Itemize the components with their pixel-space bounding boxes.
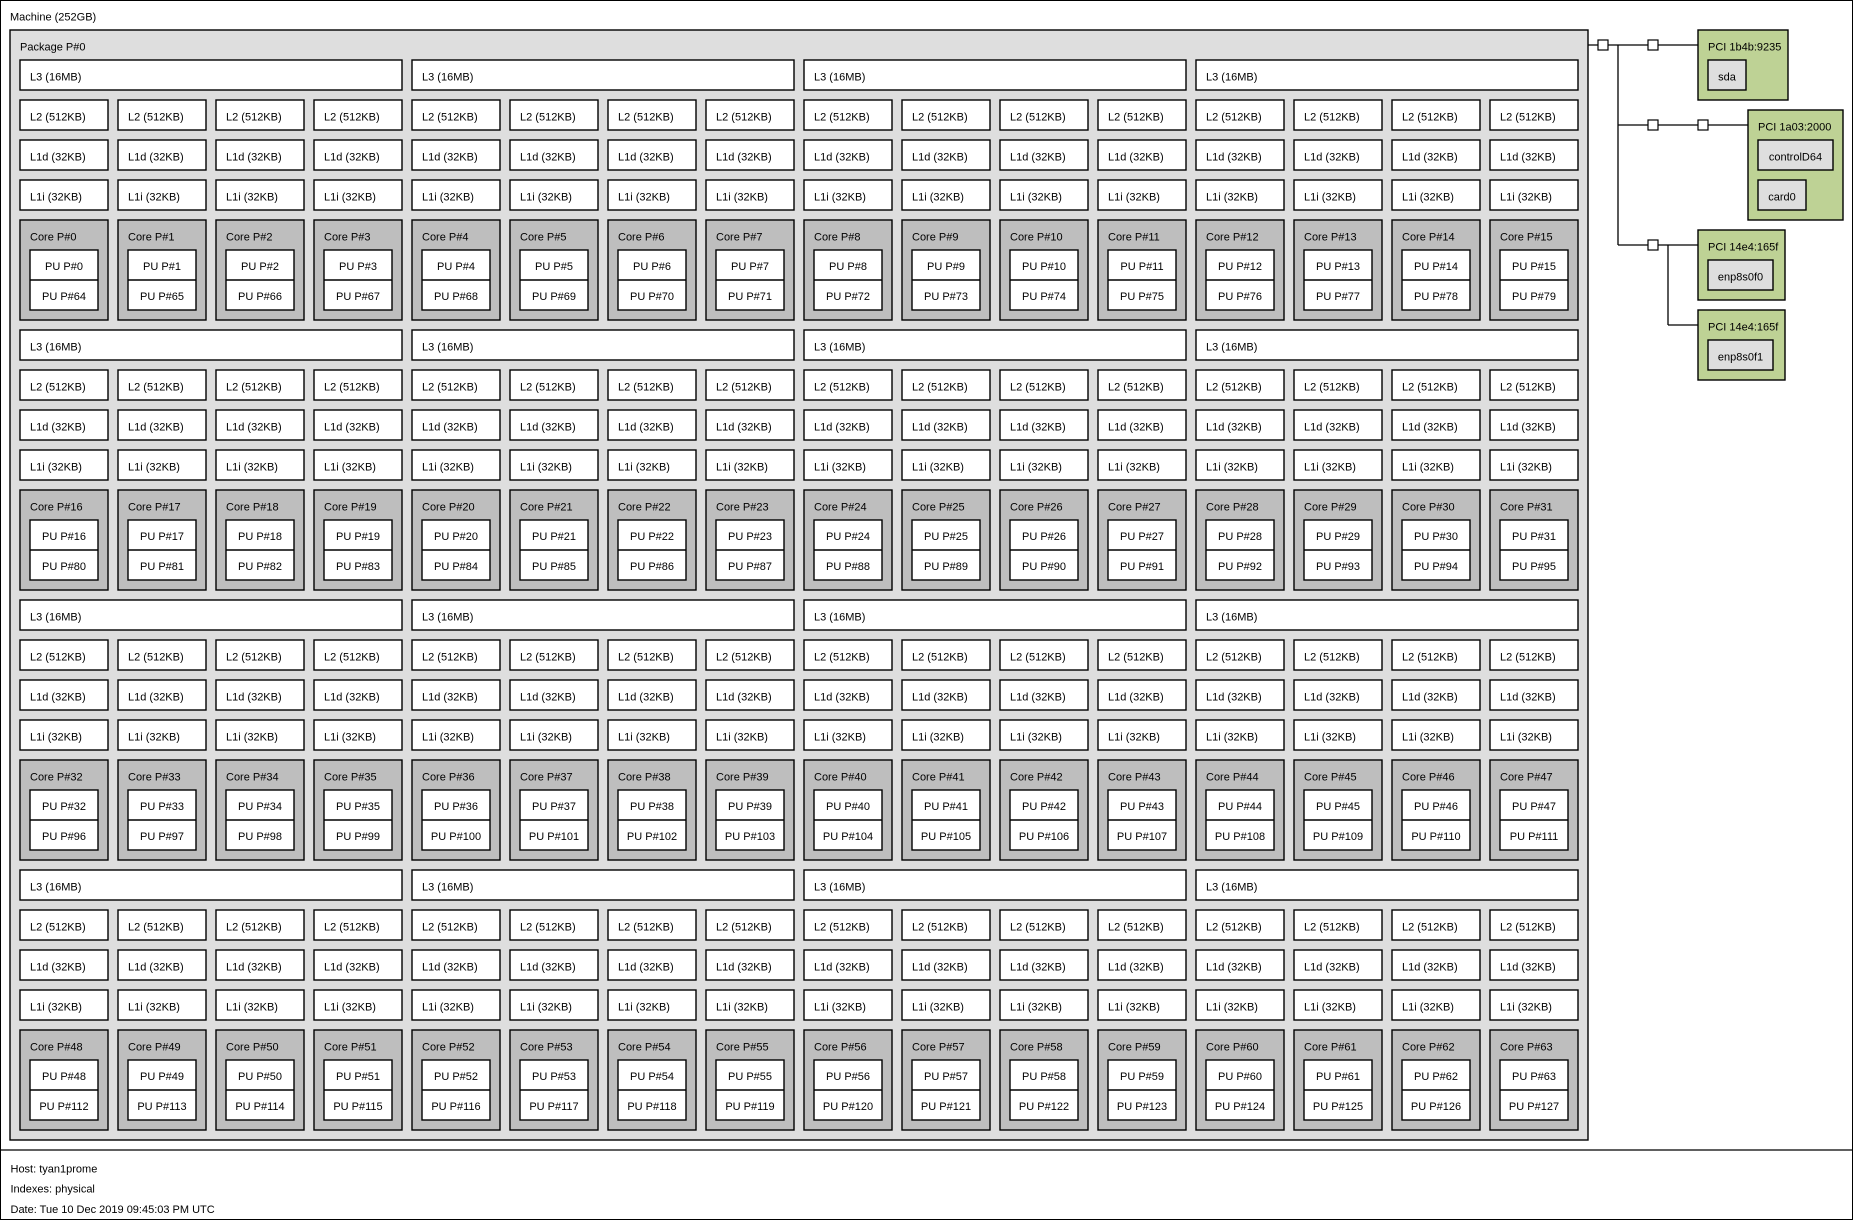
svg-text:PU P#98: PU P#98 xyxy=(238,831,282,843)
svg-text:PU P#7: PU P#7 xyxy=(731,261,769,273)
svg-text:Core P#25: Core P#25 xyxy=(912,501,965,513)
svg-text:L2 (512KB): L2 (512KB) xyxy=(814,651,870,663)
svg-text:L2 (512KB): L2 (512KB) xyxy=(716,921,772,933)
svg-text:L2 (512KB): L2 (512KB) xyxy=(716,381,772,393)
svg-text:L1d (32KB): L1d (32KB) xyxy=(520,961,576,973)
svg-text:L1i (32KB): L1i (32KB) xyxy=(716,191,768,203)
svg-text:L1i (32KB): L1i (32KB) xyxy=(912,731,964,743)
svg-text:PU P#34: PU P#34 xyxy=(238,801,282,813)
svg-text:L1d (32KB): L1d (32KB) xyxy=(1108,691,1164,703)
svg-text:L2 (512KB): L2 (512KB) xyxy=(324,111,380,123)
svg-text:L1i (32KB): L1i (32KB) xyxy=(1108,731,1160,743)
svg-text:Core P#21: Core P#21 xyxy=(520,501,573,513)
svg-text:L1d (32KB): L1d (32KB) xyxy=(1500,421,1556,433)
svg-text:PU P#3: PU P#3 xyxy=(339,261,377,273)
svg-text:PU P#124: PU P#124 xyxy=(1215,1101,1265,1113)
svg-text:L1d (32KB): L1d (32KB) xyxy=(128,961,184,973)
svg-text:PU P#81: PU P#81 xyxy=(140,561,184,573)
svg-text:PU P#33: PU P#33 xyxy=(140,801,184,813)
svg-text:L3 (16MB): L3 (16MB) xyxy=(30,71,81,83)
svg-text:L2 (512KB): L2 (512KB) xyxy=(226,111,282,123)
svg-text:PU P#22: PU P#22 xyxy=(630,531,674,543)
svg-text:L1i (32KB): L1i (32KB) xyxy=(324,731,376,743)
svg-text:Core P#22: Core P#22 xyxy=(618,501,671,513)
svg-text:L1d (32KB): L1d (32KB) xyxy=(1010,961,1066,973)
svg-text:PU P#101: PU P#101 xyxy=(529,831,579,843)
svg-text:L2 (512KB): L2 (512KB) xyxy=(1500,921,1556,933)
svg-text:PU P#92: PU P#92 xyxy=(1218,561,1262,573)
svg-text:PU P#121: PU P#121 xyxy=(921,1101,971,1113)
svg-text:L1i (32KB): L1i (32KB) xyxy=(30,461,82,473)
svg-text:L1i (32KB): L1i (32KB) xyxy=(1402,731,1454,743)
svg-text:L1d (32KB): L1d (32KB) xyxy=(912,151,968,163)
svg-text:Package P#0: Package P#0 xyxy=(20,41,85,53)
svg-text:L3 (16MB): L3 (16MB) xyxy=(1206,881,1257,893)
svg-text:L1i (32KB): L1i (32KB) xyxy=(716,1001,768,1013)
svg-text:Core P#1: Core P#1 xyxy=(128,231,174,243)
svg-text:L1i (32KB): L1i (32KB) xyxy=(30,1001,82,1013)
svg-text:L2 (512KB): L2 (512KB) xyxy=(128,111,184,123)
svg-text:L2 (512KB): L2 (512KB) xyxy=(1402,381,1458,393)
svg-text:PU P#75: PU P#75 xyxy=(1120,291,1164,303)
svg-text:L2 (512KB): L2 (512KB) xyxy=(814,921,870,933)
svg-text:L3 (16MB): L3 (16MB) xyxy=(1206,611,1257,623)
svg-text:PU P#9: PU P#9 xyxy=(927,261,965,273)
svg-text:L1d (32KB): L1d (32KB) xyxy=(128,421,184,433)
svg-text:L3 (16MB): L3 (16MB) xyxy=(814,611,865,623)
svg-text:L2 (512KB): L2 (512KB) xyxy=(912,921,968,933)
svg-text:L1d (32KB): L1d (32KB) xyxy=(618,961,674,973)
svg-text:Core P#49: Core P#49 xyxy=(128,1041,181,1053)
svg-text:L1i (32KB): L1i (32KB) xyxy=(520,191,572,203)
svg-text:PU P#6: PU P#6 xyxy=(633,261,671,273)
svg-text:PU P#105: PU P#105 xyxy=(921,831,971,843)
svg-text:Machine (252GB): Machine (252GB) xyxy=(10,11,96,23)
svg-text:L1i (32KB): L1i (32KB) xyxy=(618,731,670,743)
svg-text:sda: sda xyxy=(1718,71,1737,83)
svg-text:L2 (512KB): L2 (512KB) xyxy=(1500,111,1556,123)
svg-text:L2 (512KB): L2 (512KB) xyxy=(1010,111,1066,123)
svg-text:L1d (32KB): L1d (32KB) xyxy=(618,691,674,703)
svg-text:L1i (32KB): L1i (32KB) xyxy=(814,461,866,473)
svg-text:PU P#13: PU P#13 xyxy=(1316,261,1360,273)
svg-text:L1i (32KB): L1i (32KB) xyxy=(618,1001,670,1013)
svg-text:Core P#51: Core P#51 xyxy=(324,1041,377,1053)
svg-text:L1i (32KB): L1i (32KB) xyxy=(1010,731,1062,743)
svg-text:L2 (512KB): L2 (512KB) xyxy=(422,381,478,393)
svg-text:L1i (32KB): L1i (32KB) xyxy=(1500,461,1552,473)
svg-text:L1d (32KB): L1d (32KB) xyxy=(128,151,184,163)
svg-text:L1i (32KB): L1i (32KB) xyxy=(618,191,670,203)
svg-text:PU P#5: PU P#5 xyxy=(535,261,573,273)
svg-text:L1i (32KB): L1i (32KB) xyxy=(324,1001,376,1013)
svg-text:PU P#126: PU P#126 xyxy=(1411,1101,1461,1113)
svg-text:L2 (512KB): L2 (512KB) xyxy=(30,111,86,123)
svg-text:L1d (32KB): L1d (32KB) xyxy=(226,421,282,433)
svg-text:PU P#79: PU P#79 xyxy=(1512,291,1556,303)
svg-text:L2 (512KB): L2 (512KB) xyxy=(226,651,282,663)
svg-text:PU P#94: PU P#94 xyxy=(1414,561,1458,573)
svg-text:Core P#56: Core P#56 xyxy=(814,1041,867,1053)
svg-text:L1d (32KB): L1d (32KB) xyxy=(1206,691,1262,703)
svg-text:PU P#118: PU P#118 xyxy=(627,1101,676,1113)
svg-text:L1i (32KB): L1i (32KB) xyxy=(716,461,768,473)
svg-text:Core P#53: Core P#53 xyxy=(520,1041,573,1053)
svg-text:PU P#53: PU P#53 xyxy=(532,1071,576,1083)
svg-text:Core P#8: Core P#8 xyxy=(814,231,860,243)
svg-text:L1i (32KB): L1i (32KB) xyxy=(1402,461,1454,473)
svg-text:L1i (32KB): L1i (32KB) xyxy=(1402,1001,1454,1013)
svg-text:L2 (512KB): L2 (512KB) xyxy=(422,921,478,933)
svg-text:Core P#9: Core P#9 xyxy=(912,231,958,243)
svg-text:PU P#43: PU P#43 xyxy=(1120,801,1164,813)
svg-text:Core P#34: Core P#34 xyxy=(226,771,279,783)
svg-text:Core P#27: Core P#27 xyxy=(1108,501,1161,513)
svg-text:L2 (512KB): L2 (512KB) xyxy=(324,651,380,663)
svg-text:L2 (512KB): L2 (512KB) xyxy=(128,381,184,393)
svg-text:PU P#57: PU P#57 xyxy=(924,1071,968,1083)
svg-text:PU P#37: PU P#37 xyxy=(532,801,576,813)
svg-text:PU P#11: PU P#11 xyxy=(1120,261,1163,273)
svg-text:Core P#30: Core P#30 xyxy=(1402,501,1455,513)
svg-text:Core P#59: Core P#59 xyxy=(1108,1041,1161,1053)
svg-text:L1i (32KB): L1i (32KB) xyxy=(1010,1001,1062,1013)
svg-text:PU P#31: PU P#31 xyxy=(1512,531,1556,543)
svg-text:PU P#74: PU P#74 xyxy=(1022,291,1066,303)
svg-text:PU P#35: PU P#35 xyxy=(336,801,380,813)
svg-text:L3 (16MB): L3 (16MB) xyxy=(30,341,81,353)
svg-text:Core P#32: Core P#32 xyxy=(30,771,83,783)
svg-text:PU P#62: PU P#62 xyxy=(1414,1071,1458,1083)
svg-text:PU P#82: PU P#82 xyxy=(238,561,282,573)
svg-text:PU P#68: PU P#68 xyxy=(434,291,478,303)
svg-text:L2 (512KB): L2 (512KB) xyxy=(1206,381,1262,393)
svg-text:Core P#40: Core P#40 xyxy=(814,771,867,783)
svg-text:Core P#2: Core P#2 xyxy=(226,231,272,243)
svg-text:L2 (512KB): L2 (512KB) xyxy=(716,111,772,123)
svg-text:L1i (32KB): L1i (32KB) xyxy=(520,731,572,743)
svg-text:PU P#107: PU P#107 xyxy=(1117,831,1167,843)
svg-text:PU P#51: PU P#51 xyxy=(336,1071,380,1083)
svg-text:Core P#12: Core P#12 xyxy=(1206,231,1259,243)
svg-text:PU P#70: PU P#70 xyxy=(630,291,674,303)
svg-text:L1d (32KB): L1d (32KB) xyxy=(324,691,380,703)
svg-text:L2 (512KB): L2 (512KB) xyxy=(1304,921,1360,933)
svg-text:PU P#18: PU P#18 xyxy=(238,531,282,543)
svg-text:PU P#106: PU P#106 xyxy=(1019,831,1069,843)
svg-text:L1i (32KB): L1i (32KB) xyxy=(520,1001,572,1013)
svg-text:L1d (32KB): L1d (32KB) xyxy=(1108,961,1164,973)
svg-text:PU P#60: PU P#60 xyxy=(1218,1071,1262,1083)
svg-text:L2 (512KB): L2 (512KB) xyxy=(324,921,380,933)
svg-text:PU P#4: PU P#4 xyxy=(437,261,475,273)
svg-text:L1d (32KB): L1d (32KB) xyxy=(1500,691,1556,703)
svg-text:PU P#85: PU P#85 xyxy=(532,561,576,573)
svg-text:PU P#96: PU P#96 xyxy=(42,831,86,843)
svg-text:L1d (32KB): L1d (32KB) xyxy=(912,961,968,973)
svg-text:PU P#95: PU P#95 xyxy=(1512,561,1556,573)
svg-text:PU P#111: PU P#111 xyxy=(1510,831,1559,843)
svg-text:Core P#15: Core P#15 xyxy=(1500,231,1553,243)
svg-text:Core P#43: Core P#43 xyxy=(1108,771,1161,783)
svg-text:L1i (32KB): L1i (32KB) xyxy=(1108,1001,1160,1013)
svg-text:L1d (32KB): L1d (32KB) xyxy=(1108,421,1164,433)
svg-text:L1d (32KB): L1d (32KB) xyxy=(226,691,282,703)
svg-text:PCI 1a03:2000: PCI 1a03:2000 xyxy=(1758,121,1831,133)
svg-text:PU P#20: PU P#20 xyxy=(434,531,478,543)
svg-text:L1d (32KB): L1d (32KB) xyxy=(814,151,870,163)
svg-text:PU P#28: PU P#28 xyxy=(1218,531,1262,543)
svg-text:L3 (16MB): L3 (16MB) xyxy=(814,341,865,353)
svg-text:L2 (512KB): L2 (512KB) xyxy=(618,651,674,663)
svg-text:PU P#38: PU P#38 xyxy=(630,801,674,813)
svg-text:PU P#64: PU P#64 xyxy=(42,291,86,303)
svg-text:Core P#36: Core P#36 xyxy=(422,771,475,783)
svg-text:L1d (32KB): L1d (32KB) xyxy=(716,961,772,973)
svg-text:L2 (512KB): L2 (512KB) xyxy=(324,381,380,393)
svg-text:L1i (32KB): L1i (32KB) xyxy=(128,731,180,743)
svg-text:Core P#23: Core P#23 xyxy=(716,501,769,513)
svg-text:PU P#102: PU P#102 xyxy=(627,831,677,843)
svg-text:Core P#26: Core P#26 xyxy=(1010,501,1063,513)
svg-text:PU P#27: PU P#27 xyxy=(1120,531,1164,543)
svg-text:L1d (32KB): L1d (32KB) xyxy=(324,151,380,163)
svg-text:Core P#16: Core P#16 xyxy=(30,501,83,513)
svg-text:L1i (32KB): L1i (32KB) xyxy=(1206,731,1258,743)
svg-text:card0: card0 xyxy=(1768,191,1796,203)
svg-text:Core P#5: Core P#5 xyxy=(520,231,566,243)
svg-text:L2 (512KB): L2 (512KB) xyxy=(1500,651,1556,663)
svg-text:L1i (32KB): L1i (32KB) xyxy=(1304,1001,1356,1013)
svg-text:L1d (32KB): L1d (32KB) xyxy=(422,421,478,433)
svg-text:L1i (32KB): L1i (32KB) xyxy=(1010,191,1062,203)
svg-text:Core P#57: Core P#57 xyxy=(912,1041,965,1053)
svg-text:L3 (16MB): L3 (16MB) xyxy=(30,881,81,893)
svg-text:PU P#66: PU P#66 xyxy=(238,291,282,303)
svg-text:PU P#45: PU P#45 xyxy=(1316,801,1360,813)
svg-text:PU P#1: PU P#1 xyxy=(143,261,181,273)
svg-text:PU P#87: PU P#87 xyxy=(728,561,772,573)
svg-text:Core P#4: Core P#4 xyxy=(422,231,468,243)
svg-text:L1d (32KB): L1d (32KB) xyxy=(814,421,870,433)
svg-text:L1d (32KB): L1d (32KB) xyxy=(912,421,968,433)
svg-text:L1d (32KB): L1d (32KB) xyxy=(1402,691,1458,703)
svg-text:L3 (16MB): L3 (16MB) xyxy=(1206,71,1257,83)
svg-text:PU P#109: PU P#109 xyxy=(1313,831,1363,843)
svg-text:L1d (32KB): L1d (32KB) xyxy=(128,691,184,703)
svg-text:L2 (512KB): L2 (512KB) xyxy=(1010,921,1066,933)
svg-text:Indexes: physical: Indexes: physical xyxy=(11,1184,95,1196)
svg-text:PU P#127: PU P#127 xyxy=(1509,1101,1559,1113)
svg-text:PU P#41: PU P#41 xyxy=(924,801,968,813)
svg-text:PU P#110: PU P#110 xyxy=(1411,831,1460,843)
svg-text:Core P#20: Core P#20 xyxy=(422,501,475,513)
svg-text:L2 (512KB): L2 (512KB) xyxy=(618,921,674,933)
svg-text:L1d (32KB): L1d (32KB) xyxy=(226,961,282,973)
svg-text:L1d (32KB): L1d (32KB) xyxy=(1010,691,1066,703)
svg-text:L2 (512KB): L2 (512KB) xyxy=(520,651,576,663)
svg-text:L1d (32KB): L1d (32KB) xyxy=(520,691,576,703)
svg-text:L1i (32KB): L1i (32KB) xyxy=(912,1001,964,1013)
svg-text:Core P#24: Core P#24 xyxy=(814,501,867,513)
svg-text:L2 (512KB): L2 (512KB) xyxy=(128,651,184,663)
svg-text:Core P#6: Core P#6 xyxy=(618,231,664,243)
svg-text:PU P#0: PU P#0 xyxy=(45,261,83,273)
svg-text:PU P#58: PU P#58 xyxy=(1022,1071,1066,1083)
svg-text:Date: Tue 10 Dec 2019 09:45:03: Date: Tue 10 Dec 2019 09:45:03 PM UTC xyxy=(11,1204,215,1216)
svg-text:PU P#54: PU P#54 xyxy=(630,1071,674,1083)
svg-text:L1i (32KB): L1i (32KB) xyxy=(912,191,964,203)
svg-text:PU P#10: PU P#10 xyxy=(1022,261,1066,273)
svg-text:L1i (32KB): L1i (32KB) xyxy=(1500,191,1552,203)
svg-text:PCI 14e4:165f: PCI 14e4:165f xyxy=(1708,241,1779,253)
svg-text:L2 (512KB): L2 (512KB) xyxy=(1108,381,1164,393)
svg-text:controlD64: controlD64 xyxy=(1769,151,1822,163)
svg-text:Core P#47: Core P#47 xyxy=(1500,771,1553,783)
svg-text:Core P#39: Core P#39 xyxy=(716,771,769,783)
svg-text:L3 (16MB): L3 (16MB) xyxy=(422,341,473,353)
svg-text:L2 (512KB): L2 (512KB) xyxy=(618,111,674,123)
svg-text:PU P#80: PU P#80 xyxy=(42,561,86,573)
svg-text:L1i (32KB): L1i (32KB) xyxy=(1010,461,1062,473)
svg-text:L2 (512KB): L2 (512KB) xyxy=(1304,381,1360,393)
svg-text:PU P#97: PU P#97 xyxy=(140,831,184,843)
svg-text:PU P#72: PU P#72 xyxy=(826,291,870,303)
svg-text:PU P#99: PU P#99 xyxy=(336,831,380,843)
svg-text:PU P#65: PU P#65 xyxy=(140,291,184,303)
svg-text:PU P#49: PU P#49 xyxy=(140,1071,184,1083)
svg-text:PCI 1b4b:9235: PCI 1b4b:9235 xyxy=(1708,41,1781,53)
svg-text:PU P#112: PU P#112 xyxy=(39,1101,88,1113)
svg-text:L1i (32KB): L1i (32KB) xyxy=(1304,461,1356,473)
svg-text:PU P#36: PU P#36 xyxy=(434,801,478,813)
svg-text:L2 (512KB): L2 (512KB) xyxy=(1206,651,1262,663)
svg-text:L1i (32KB): L1i (32KB) xyxy=(422,461,474,473)
svg-text:PU P#63: PU P#63 xyxy=(1512,1071,1556,1083)
svg-text:PU P#46: PU P#46 xyxy=(1414,801,1458,813)
svg-text:L2 (512KB): L2 (512KB) xyxy=(128,921,184,933)
svg-text:PU P#120: PU P#120 xyxy=(823,1101,873,1113)
svg-text:L1i (32KB): L1i (32KB) xyxy=(618,461,670,473)
svg-text:L2 (512KB): L2 (512KB) xyxy=(912,381,968,393)
svg-text:L1i (32KB): L1i (32KB) xyxy=(30,731,82,743)
svg-text:L1d (32KB): L1d (32KB) xyxy=(1500,961,1556,973)
svg-text:L2 (512KB): L2 (512KB) xyxy=(1108,921,1164,933)
svg-text:L2 (512KB): L2 (512KB) xyxy=(30,381,86,393)
svg-text:L2 (512KB): L2 (512KB) xyxy=(1500,381,1556,393)
svg-text:L2 (512KB): L2 (512KB) xyxy=(30,921,86,933)
svg-text:PU P#117: PU P#117 xyxy=(529,1101,578,1113)
svg-text:PU P#8: PU P#8 xyxy=(829,261,867,273)
svg-text:PU P#47: PU P#47 xyxy=(1512,801,1556,813)
svg-text:PU P#40: PU P#40 xyxy=(826,801,870,813)
svg-text:L3 (16MB): L3 (16MB) xyxy=(1206,341,1257,353)
svg-text:PU P#93: PU P#93 xyxy=(1316,561,1360,573)
svg-text:L2 (512KB): L2 (512KB) xyxy=(226,381,282,393)
svg-text:L2 (512KB): L2 (512KB) xyxy=(912,111,968,123)
svg-text:L1d (32KB): L1d (32KB) xyxy=(716,421,772,433)
svg-text:Core P#3: Core P#3 xyxy=(324,231,370,243)
svg-text:PU P#122: PU P#122 xyxy=(1019,1101,1069,1113)
svg-text:Core P#54: Core P#54 xyxy=(618,1041,671,1053)
svg-text:PU P#125: PU P#125 xyxy=(1313,1101,1363,1113)
svg-text:Core P#62: Core P#62 xyxy=(1402,1041,1455,1053)
svg-text:L1i (32KB): L1i (32KB) xyxy=(422,191,474,203)
svg-text:L1d (32KB): L1d (32KB) xyxy=(1108,151,1164,163)
svg-text:enp8s0f0: enp8s0f0 xyxy=(1718,271,1763,283)
svg-text:L2 (512KB): L2 (512KB) xyxy=(1206,111,1262,123)
svg-text:PU P#115: PU P#115 xyxy=(333,1101,382,1113)
svg-text:L2 (512KB): L2 (512KB) xyxy=(1010,381,1066,393)
svg-text:PU P#83: PU P#83 xyxy=(336,561,380,573)
svg-text:L2 (512KB): L2 (512KB) xyxy=(1108,111,1164,123)
svg-text:L3 (16MB): L3 (16MB) xyxy=(814,71,865,83)
svg-text:L1d (32KB): L1d (32KB) xyxy=(618,151,674,163)
svg-text:L2 (512KB): L2 (512KB) xyxy=(1402,921,1458,933)
svg-text:L1i (32KB): L1i (32KB) xyxy=(1206,1001,1258,1013)
svg-text:PU P#113: PU P#113 xyxy=(137,1101,186,1113)
svg-text:L3 (16MB): L3 (16MB) xyxy=(30,611,81,623)
svg-text:L2 (512KB): L2 (512KB) xyxy=(1304,111,1360,123)
svg-text:L2 (512KB): L2 (512KB) xyxy=(520,921,576,933)
svg-text:L2 (512KB): L2 (512KB) xyxy=(1402,111,1458,123)
svg-text:PU P#89: PU P#89 xyxy=(924,561,968,573)
svg-text:Core P#63: Core P#63 xyxy=(1500,1041,1553,1053)
svg-text:L2 (512KB): L2 (512KB) xyxy=(814,381,870,393)
svg-text:Core P#37: Core P#37 xyxy=(520,771,573,783)
svg-text:L2 (512KB): L2 (512KB) xyxy=(226,921,282,933)
svg-text:PU P#90: PU P#90 xyxy=(1022,561,1066,573)
svg-text:PU P#52: PU P#52 xyxy=(434,1071,478,1083)
svg-text:L1i (32KB): L1i (32KB) xyxy=(30,191,82,203)
svg-text:L1d (32KB): L1d (32KB) xyxy=(716,691,772,703)
svg-text:L1i (32KB): L1i (32KB) xyxy=(226,191,278,203)
svg-text:PU P#59: PU P#59 xyxy=(1120,1071,1164,1083)
svg-text:PU P#24: PU P#24 xyxy=(826,531,870,543)
svg-text:L1i (32KB): L1i (32KB) xyxy=(912,461,964,473)
svg-text:Core P#13: Core P#13 xyxy=(1304,231,1357,243)
svg-text:L1d (32KB): L1d (32KB) xyxy=(422,961,478,973)
svg-text:Core P#29: Core P#29 xyxy=(1304,501,1357,513)
svg-text:PU P#12: PU P#12 xyxy=(1218,261,1262,273)
svg-text:Core P#55: Core P#55 xyxy=(716,1041,769,1053)
svg-text:L2 (512KB): L2 (512KB) xyxy=(1304,651,1360,663)
svg-text:PU P#17: PU P#17 xyxy=(140,531,184,543)
svg-text:Core P#31: Core P#31 xyxy=(1500,501,1553,513)
svg-text:L1i (32KB): L1i (32KB) xyxy=(128,461,180,473)
svg-text:L1d (32KB): L1d (32KB) xyxy=(1206,961,1262,973)
svg-text:PU P#114: PU P#114 xyxy=(235,1101,284,1113)
svg-text:PU P#2: PU P#2 xyxy=(241,261,279,273)
svg-text:Core P#19: Core P#19 xyxy=(324,501,377,513)
svg-text:Core P#14: Core P#14 xyxy=(1402,231,1455,243)
svg-text:PCI 14e4:165f: PCI 14e4:165f xyxy=(1708,321,1779,333)
svg-text:Core P#28: Core P#28 xyxy=(1206,501,1259,513)
svg-text:PU P#78: PU P#78 xyxy=(1414,291,1458,303)
svg-text:L3 (16MB): L3 (16MB) xyxy=(422,611,473,623)
svg-text:PU P#50: PU P#50 xyxy=(238,1071,282,1083)
svg-text:L1i (32KB): L1i (32KB) xyxy=(1206,191,1258,203)
svg-text:L1i (32KB): L1i (32KB) xyxy=(226,1001,278,1013)
svg-text:L1i (32KB): L1i (32KB) xyxy=(520,461,572,473)
svg-text:PU P#69: PU P#69 xyxy=(532,291,576,303)
svg-text:Core P#7: Core P#7 xyxy=(716,231,762,243)
svg-text:L1d (32KB): L1d (32KB) xyxy=(422,151,478,163)
svg-text:PU P#103: PU P#103 xyxy=(725,831,775,843)
svg-text:PU P#108: PU P#108 xyxy=(1215,831,1265,843)
svg-text:Core P#33: Core P#33 xyxy=(128,771,181,783)
svg-text:Core P#52: Core P#52 xyxy=(422,1041,475,1053)
